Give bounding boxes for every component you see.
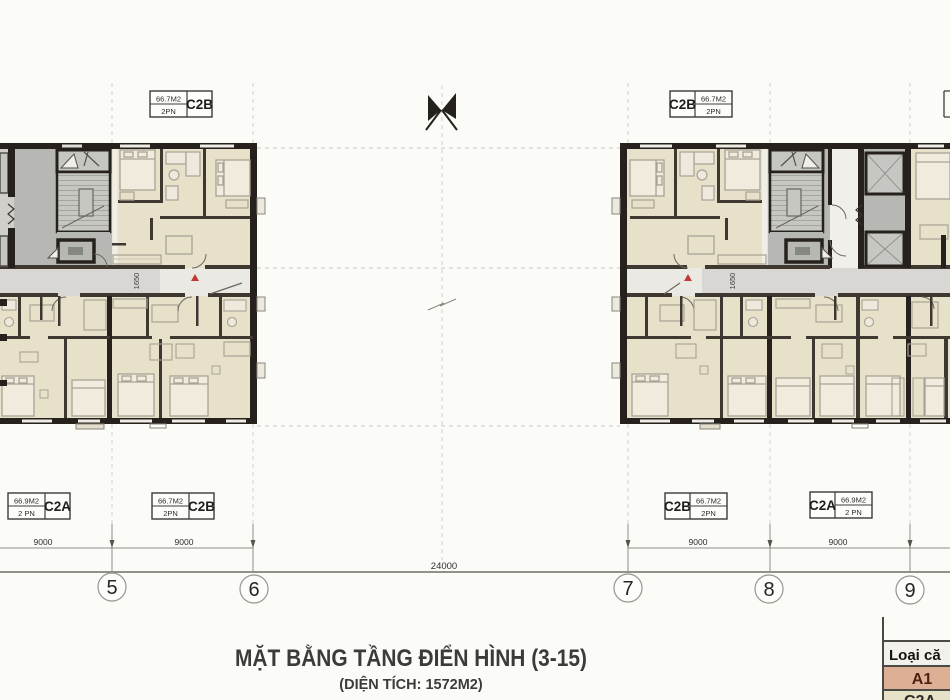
svg-text:66.7M2: 66.7M2 — [701, 95, 726, 104]
svg-text:66.9M2: 66.9M2 — [14, 497, 39, 506]
svg-text:9000: 9000 — [34, 537, 53, 547]
svg-text:24000: 24000 — [431, 561, 457, 572]
svg-text:6: 6 — [248, 579, 259, 601]
svg-text:66.7M2: 66.7M2 — [696, 497, 721, 506]
svg-text:8: 8 — [763, 579, 774, 601]
svg-text:C2B: C2B — [188, 499, 215, 514]
svg-text:1650: 1650 — [728, 273, 737, 290]
svg-text:9000: 9000 — [175, 537, 194, 547]
svg-text:C2A: C2A — [904, 693, 936, 700]
svg-text:2PN: 2PN — [706, 107, 721, 116]
svg-text:C2B: C2B — [669, 97, 696, 112]
svg-text:7: 7 — [622, 578, 633, 600]
svg-text:2PN: 2PN — [161, 107, 176, 116]
svg-text:C2A: C2A — [44, 499, 71, 514]
svg-text:2 PN: 2 PN — [18, 509, 35, 518]
svg-text:9000: 9000 — [689, 537, 708, 547]
svg-text:MẶT BẰNG TẦNG ĐIỂN HÌNH (3-15): MẶT BẰNG TẦNG ĐIỂN HÌNH (3-15) — [235, 644, 587, 672]
svg-text:C2B: C2B — [186, 97, 213, 112]
svg-text:66.9M2: 66.9M2 — [841, 496, 866, 505]
svg-text:66.7M2: 66.7M2 — [156, 95, 181, 104]
svg-text:(DIỆN TÍCH: 1572M2): (DIỆN TÍCH: 1572M2) — [339, 675, 483, 693]
svg-text:2PN: 2PN — [163, 509, 178, 518]
svg-text:9000: 9000 — [829, 537, 848, 547]
svg-text:Loại că: Loại că — [889, 647, 941, 664]
svg-text:2 PN: 2 PN — [845, 508, 862, 517]
svg-text:2PN: 2PN — [701, 509, 716, 518]
svg-text:1650: 1650 — [132, 273, 141, 290]
svg-text:A1: A1 — [912, 671, 933, 688]
svg-text:9: 9 — [904, 580, 915, 602]
svg-text:C2A: C2A — [809, 498, 836, 513]
svg-text:5: 5 — [106, 577, 117, 599]
svg-text:C2B: C2B — [664, 499, 691, 514]
svg-text:66.7M2: 66.7M2 — [158, 497, 183, 506]
